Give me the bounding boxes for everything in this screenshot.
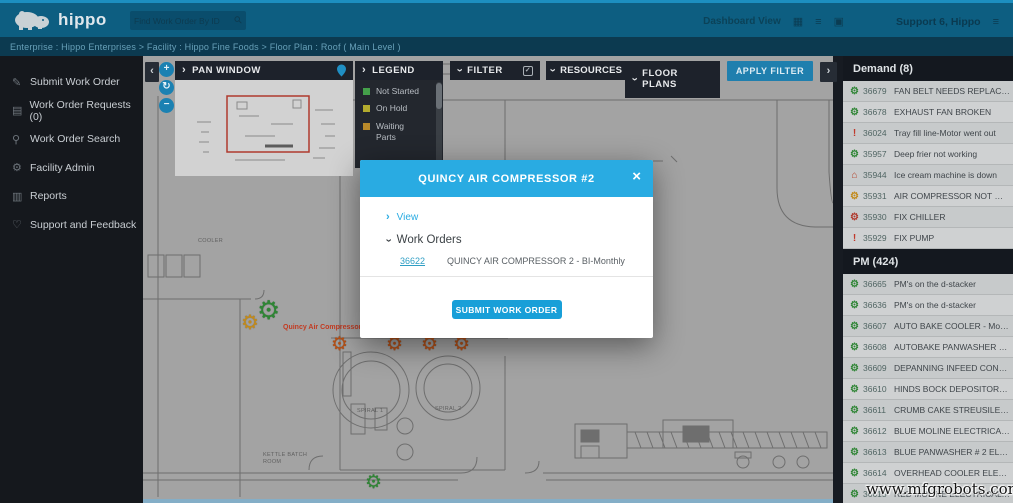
modal-title: QUINCY AIR COMPRESSOR #2	[418, 173, 594, 185]
sidebar-item-icon: ♡	[12, 218, 30, 231]
legend-panel: › LEGEND Not Started On Hold	[355, 61, 443, 168]
floor-plans-label: FLOOR PLANS	[642, 69, 690, 91]
chevron-down-icon: ›	[629, 77, 640, 81]
hippo-logo[interactable]: hippo	[14, 9, 107, 31]
legend-body: Not Started On Hold Waiting Parts	[355, 80, 443, 168]
grid-view-icon[interactable]: ▦	[793, 15, 803, 28]
breadcrumb: Enterprise : Hippo Enterprises > Facilit…	[0, 37, 1013, 56]
sidebar-item[interactable]: ▤ Work Order Requests (0)	[0, 97, 143, 126]
top-navbar: hippo ⚲ Dashboard View ▦ ≡ ▣ Support 6, …	[0, 0, 1013, 37]
work-order-id: 36678	[863, 107, 894, 117]
work-order-id: 36613	[863, 447, 894, 457]
work-order-row[interactable]: ⚙ 36609 DEPANNING INFEED CONVEYORS...	[843, 358, 1013, 379]
work-order-row[interactable]: ⚙ 36665 PM's on the d-stacker	[843, 274, 1013, 295]
work-order-status-icon: ⚙	[848, 191, 861, 202]
pan-window-panel: › PAN WINDOW	[175, 61, 353, 176]
filter-header[interactable]: › FILTER ✓	[450, 61, 540, 80]
zoom-out-button[interactable]: −	[159, 98, 174, 113]
work-order-title: FIX CHILLER	[894, 212, 949, 222]
sidebar-item-icon: ▥	[12, 190, 30, 203]
legend-scrollbar-thumb[interactable]	[436, 83, 442, 109]
work-order-status-icon: ⚙	[848, 447, 861, 458]
sidebar-item[interactable]: ▥ Reports	[0, 182, 143, 211]
work-order-name: QUINCY AIR COMPRESSOR 2 - BI-Monthly	[447, 256, 625, 266]
sidebar-item-icon: ✎	[12, 76, 30, 89]
work-order-status-icon: !	[848, 233, 861, 244]
legend-item: Waiting Parts	[363, 121, 433, 144]
close-icon[interactable]: ×	[632, 169, 641, 184]
work-order-row[interactable]: ⚙ 36608 AUTOBAKE PANWASHER MECHA...	[843, 337, 1013, 358]
work-order-id: 36679	[863, 86, 894, 96]
modal-header: QUINCY AIR COMPRESSOR #2 ×	[360, 160, 653, 197]
work-order-status-icon: ⚙	[848, 342, 861, 353]
work-order-title: PM's on the d-stacker	[894, 300, 979, 310]
work-order-id: 36024	[863, 128, 894, 138]
chevron-down-icon: ›	[547, 68, 558, 72]
pan-window-label: PAN WINDOW	[192, 65, 261, 76]
demand-section-header[interactable]: Demand (8)	[843, 56, 1013, 81]
resources-label: RESOURCES	[560, 65, 622, 76]
pm-title: PM (424)	[853, 256, 898, 268]
work-order-row[interactable]: ⚙ 36611 CRUMB CAKE STREUSILER PM - BI...	[843, 400, 1013, 421]
work-order-title: CRUMB CAKE STREUSILER PM - BI...	[894, 405, 1013, 415]
work-order-id: 36609	[863, 363, 894, 373]
resources-header[interactable]: › RESOURCES ✓	[546, 61, 627, 80]
work-order-row[interactable]: ⌂ 35944 Ice cream machine is down	[843, 165, 1013, 186]
work-order-title: PM's on the d-stacker	[894, 279, 979, 289]
minimap-viewport-rect	[227, 96, 309, 152]
work-order-status-icon: ⚙	[848, 212, 861, 223]
work-order-title: Deep frier not working	[894, 149, 980, 159]
legend-color-swatch	[363, 88, 370, 95]
work-order-status-icon: ⚙	[848, 149, 861, 160]
work-order-status-icon: ⚙	[848, 321, 861, 332]
work-order-title: Tray fill line-Motor went out	[894, 128, 999, 138]
work-order-title: BLUE PANWASHER # 2 ELECTRICA...	[894, 447, 1013, 457]
work-order-row[interactable]: ⚙ 36607 AUTO BAKE COOLER - Monthly	[843, 316, 1013, 337]
work-order-title: DEPANNING INFEED CONVEYORS...	[894, 363, 1013, 373]
work-order-row[interactable]: ⚙ 36612 BLUE MOLINE ELECTRICAL PANEL...	[843, 421, 1013, 442]
legend-item-label: Not Started	[376, 86, 424, 97]
asset-marker-gear-icon[interactable]: ⚙	[331, 335, 348, 354]
chevron-down-icon: ›	[454, 68, 465, 72]
work-order-title: AUTOBAKE PANWASHER MECHA...	[894, 342, 1013, 352]
sidebar-item-label: Support and Feedback	[30, 219, 136, 231]
work-order-id: 35929	[863, 233, 894, 243]
list-view-icon[interactable]: ≡	[815, 16, 821, 28]
pan-window-header[interactable]: › PAN WINDOW	[175, 61, 353, 80]
work-order-id: 36611	[863, 405, 894, 415]
zoom-in-button[interactable]: +	[159, 62, 174, 77]
work-order-id: 35931	[863, 191, 894, 201]
dashboard-view-label: Dashboard View	[703, 16, 781, 27]
legend-item-label: Waiting Parts	[376, 121, 424, 144]
navbar-right: Dashboard View ▦ ≡ ▣ Support 6, Hippo ≡	[703, 3, 999, 40]
floor-plans-header[interactable]: › FLOOR PLANS	[625, 61, 720, 98]
modal-work-orders-toggle[interactable]: › Work Orders	[360, 234, 653, 246]
apply-filter-button[interactable]: APPLY FILTER	[727, 61, 813, 81]
demand-title: Demand (8)	[853, 63, 913, 75]
app-window: hippo ⚲ Dashboard View ▦ ≡ ▣ Support 6, …	[0, 0, 1013, 503]
asset-detail-modal: QUINCY AIR COMPRESSOR #2 × › View › Work…	[360, 160, 653, 338]
work-order-title: HINDS BOCK DEPOSITOR MECHA...	[894, 384, 1013, 394]
work-order-row[interactable]: ⚙ 36610 HINDS BOCK DEPOSITOR MECHA...	[843, 379, 1013, 400]
work-order-status-icon: ⚙	[848, 107, 861, 118]
work-order-id: 36610	[863, 384, 894, 394]
demand-list: ⚙ 36679 FAN BELT NEEDS REPLACEMENT ⚙ 366…	[843, 81, 1013, 249]
submit-work-order-button[interactable]: SUBMIT WORK ORDER	[452, 300, 562, 319]
work-order-row[interactable]: ⚙ 36636 PM's on the d-stacker	[843, 295, 1013, 316]
sidebar-item-label: Work Order Requests (0)	[29, 99, 143, 123]
view-label: View	[397, 212, 419, 223]
work-order-search-box: ⚲	[130, 11, 246, 30]
sidebar-item-icon: ⚲	[12, 133, 30, 146]
work-order-row[interactable]: ⚙ 35930 FIX CHILLER	[843, 207, 1013, 228]
legend-item: On Hold	[363, 103, 433, 114]
sidebar-item-label: Work Order Search	[30, 133, 120, 145]
sidebar-item-icon: ▤	[12, 104, 29, 117]
legend-label: LEGEND	[372, 65, 415, 76]
right-panel-edge	[833, 56, 843, 503]
work-order-status-icon: ⚙	[848, 426, 861, 437]
menu-icon[interactable]: ≡	[993, 16, 999, 28]
map-pin-icon[interactable]	[337, 64, 346, 77]
work-order-status-icon: ⚙	[848, 405, 861, 416]
legend-color-swatch	[363, 105, 370, 112]
chevron-right-icon: ›	[182, 65, 186, 76]
pm-list: ⚙ 36665 PM's on the d-stacker ⚙ 36636 PM…	[843, 274, 1013, 503]
work-order-id: 36612	[863, 426, 894, 436]
work-order-id: 36607	[863, 321, 894, 331]
work-order-row[interactable]: ! 36024 Tray fill line-Motor went out	[843, 123, 1013, 144]
legend-item: Not Started	[363, 86, 433, 97]
work-order-title: FAN BELT NEEDS REPLACEMENT	[894, 86, 1013, 96]
work-orders-label: Work Orders	[397, 234, 462, 246]
work-order-row[interactable]: ⚙ 35931 AIR COMPRESSOR NOT WORKING	[843, 186, 1013, 207]
zoom-reset-button[interactable]: ↻	[159, 80, 174, 95]
asset-marker-gear-icon[interactable]: ⚙	[365, 473, 382, 492]
room-label: KETTLE BATCH ROOM	[263, 452, 307, 466]
legend-header[interactable]: › LEGEND	[355, 61, 443, 80]
room-label: SPIRAL 1	[357, 408, 383, 415]
sidebar-item-label: Facility Admin	[30, 162, 95, 174]
sidebar: ✎ Submit Work Order ▤ Work Order Request…	[0, 56, 143, 503]
right-panel-expand-button[interactable]: ›	[820, 62, 837, 82]
sidebar-item-label: Reports	[30, 190, 67, 202]
pm-section-header[interactable]: PM (424)	[843, 249, 1013, 274]
work-order-title: EXHAUST FAN BROKEN	[894, 107, 994, 117]
watermark-text: www.mfgrobots.com	[866, 480, 1013, 498]
hippo-logo-icon	[14, 9, 50, 31]
sidebar-item[interactable]: ⚲ Work Order Search	[0, 125, 143, 154]
work-order-status-icon: ⚙	[848, 279, 861, 290]
work-order-id: 36614	[863, 468, 894, 478]
asset-marker-label[interactable]: Quincy Air Compressor	[283, 324, 361, 331]
work-order-status-icon: ⚙	[848, 384, 861, 395]
asset-marker-gear-icon[interactable]: ⚙	[257, 297, 280, 323]
work-order-title: FIX PUMP	[894, 233, 937, 243]
map-view-icon[interactable]: ▣	[834, 15, 844, 28]
chevron-right-icon: ›	[386, 212, 390, 223]
user-menu-label[interactable]: Support 6, Hippo	[896, 16, 981, 28]
work-order-row[interactable]: ⚙ 36678 EXHAUST FAN BROKEN	[843, 102, 1013, 123]
legend-color-swatch	[363, 123, 370, 130]
work-order-status-icon: ⚙	[848, 468, 861, 479]
work-order-search-input[interactable]	[134, 16, 235, 26]
work-order-row[interactable]: ⚙ 36679 FAN BELT NEEDS REPLACEMENT	[843, 81, 1013, 102]
work-order-status-icon: ⚙	[848, 300, 861, 311]
work-order-id: 36608	[863, 342, 894, 352]
work-order-status-icon: ⚙	[848, 489, 861, 500]
sidebar-item-label: Submit Work Order	[30, 76, 120, 88]
work-order-link[interactable]: 36622	[400, 256, 425, 266]
work-orders-panel: Demand (8) ⚙ 36679 FAN BELT NEEDS REPLAC…	[843, 56, 1013, 503]
sidebar-item[interactable]: ⚙ Facility Admin	[0, 154, 143, 183]
work-order-status-icon: ⌂	[848, 170, 861, 181]
work-order-row[interactable]: ⚙ 35957 Deep frier not working	[843, 144, 1013, 165]
work-order-id: 35957	[863, 149, 894, 159]
work-order-id: 36636	[863, 300, 894, 310]
room-label: SPIRAL 2	[435, 406, 461, 413]
breadcrumb-text[interactable]: Enterprise : Hippo Enterprises > Facilit…	[10, 42, 401, 52]
work-order-row[interactable]: ! 35929 FIX PUMP	[843, 228, 1013, 249]
pan-window-minimap[interactable]	[175, 80, 353, 176]
work-order-id: 35930	[863, 212, 894, 222]
work-order-row[interactable]: ⚙ 36613 BLUE PANWASHER # 2 ELECTRICA...	[843, 442, 1013, 463]
modal-work-order-item: 36622 QUINCY AIR COMPRESSOR 2 - BI-Month…	[360, 256, 653, 266]
chevron-down-icon: ›	[382, 238, 393, 242]
sidebar-collapse-button[interactable]: ‹	[145, 62, 159, 82]
work-order-id: 36665	[863, 279, 894, 289]
filter-checkbox-icon[interactable]: ✓	[523, 66, 533, 76]
sidebar-item[interactable]: ♡ Support and Feedback	[0, 211, 143, 240]
room-label: COOLER	[198, 238, 223, 245]
sidebar-item-icon: ⚙	[12, 161, 30, 174]
work-order-title: AUTO BAKE COOLER - Monthly	[894, 321, 1013, 331]
work-order-status-icon: ⚙	[848, 363, 861, 374]
logo-text: hippo	[58, 10, 107, 30]
work-order-title: AIR COMPRESSOR NOT WORKING	[894, 191, 1013, 201]
modal-divider	[360, 276, 653, 277]
work-order-id: 35944	[863, 170, 894, 180]
modal-view-toggle[interactable]: › View	[360, 212, 653, 223]
legend-item-label: On Hold	[376, 103, 424, 114]
filter-label: FILTER	[467, 65, 503, 76]
work-order-title: BLUE MOLINE ELECTRICAL PANEL...	[894, 426, 1013, 436]
sidebar-item[interactable]: ✎ Submit Work Order	[0, 68, 143, 97]
work-order-status-icon: ⚙	[848, 86, 861, 97]
chevron-right-icon: ›	[362, 65, 366, 76]
work-order-status-icon: !	[848, 128, 861, 139]
work-order-title: OVERHEAD COOLER ELECTRICAL ...	[894, 468, 1013, 478]
map-scroll-strip[interactable]	[143, 499, 833, 503]
work-order-title: Ice cream machine is down	[894, 170, 1000, 180]
